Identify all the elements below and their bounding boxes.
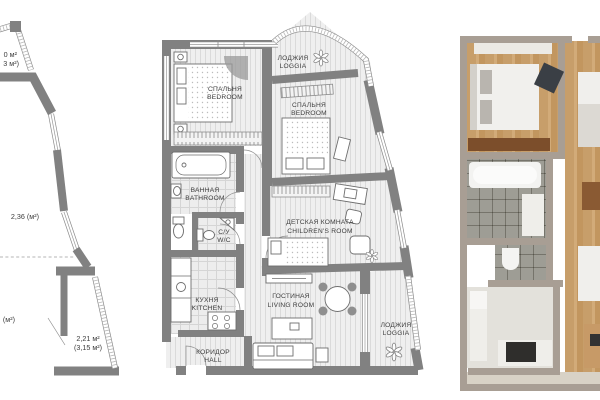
render-sofa [578,246,600,301]
render-pillow [480,100,492,124]
label-kitchen-en: KITCHEN [192,305,223,312]
label-hall-ru: КОРИДОР [196,349,230,356]
render-wall [468,368,560,375]
render-blanket [578,104,600,147]
wardrobe-icon [272,186,330,197]
stove-icon [208,312,236,330]
sink-icon [171,184,181,198]
label-bedroom2-ru: СПАЛЬНЯ [292,102,326,109]
wall [10,21,21,32]
render-stove [506,342,536,362]
render-pillow [480,70,492,94]
wardrobe-icon [174,132,262,145]
label-children-en: CHILDREN'S ROOM [287,228,352,235]
render-wall [558,36,565,159]
render-3d-plan [458,34,600,394]
render-desk [582,182,600,210]
label-children-ru: ДЕТСКАЯ КОМНАТА [286,219,354,226]
label-bedroom1-en: BEDROOM [207,94,243,101]
label-bedroom1-ru: СПАЛЬНЯ [208,86,242,93]
bed-icon [268,238,328,266]
label-loggia-bottom-ru: ЛОДЖИЯ [381,322,412,329]
wall [76,249,88,267]
detailed-plan: СПАЛЬНЯ BEDROOM ЛОДЖИЯ LOGGIA СПАЛЬНЯ BE… [162,12,419,375]
label-bathroom-en: BATHROOM [185,195,225,202]
wall [57,150,64,211]
render-table [584,324,600,368]
area-label-mid: 2,36 (м²) [11,212,39,221]
area-label-lower: (м²) [3,315,15,324]
render-wall [553,287,560,375]
label-loggia-top-ru: ЛОДЖИЯ [278,55,309,62]
render-bed-headboard [470,64,477,130]
render-wall [460,152,564,159]
render-wardrobe [474,43,552,54]
toilet-icon [173,217,184,238]
loggia-area-label-2: (3,15 м²) [74,343,102,352]
render-wall [460,384,600,391]
side-table-icon [316,348,328,362]
label-living-ru: ГОСТИНАЯ [272,293,310,300]
render-wall [460,36,572,43]
label-wc-en: W/C [217,237,231,244]
tv-stand-icon [266,274,312,283]
render-fridge [470,291,487,309]
label-loggia-top-en: LOGGIA [280,63,307,70]
render-wall [588,36,600,43]
label-kitchen-ru: КУХНЯ [195,297,218,304]
bed-icon [282,118,330,174]
loggia-area-label-1: 2,21 м² [76,334,100,343]
bed-icon [174,52,232,134]
render-wall [460,238,552,245]
label-living-en: LIVING ROOM [268,302,315,309]
label-bathroom-ru: ВАННАЯ [191,187,220,194]
bathtub-icon [172,152,230,178]
render-dresser [468,138,550,151]
label-loggia-bottom-en: LOGGIA [383,330,410,337]
render-wall [460,36,467,388]
armchair-icon [350,236,370,254]
area-label-top-1: 0 м² [4,50,18,59]
render-wall [546,159,553,287]
render-vanity [522,194,544,236]
label-wc-ru: С/У [218,229,230,236]
kitchen-counter-icon [171,258,191,322]
render-toilet [502,248,519,270]
label-hall-en: HALL [204,357,222,364]
label-bedroom2-en: BEDROOM [291,110,327,117]
render-bathtub-basin [473,166,537,184]
coffee-table-icon [272,318,312,339]
area-label-top-2: 3 м²) [3,59,19,68]
floorplan-image: 0 м² 3 м²) 2,36 (м²) (м²) 2,21 м² (3,15 … [0,0,600,400]
left-outline-plan: 0 м² 3 м²) 2,36 (м²) (м²) 2,21 м² (3,15 … [0,21,119,371]
wall [0,77,52,113]
render-table-item [590,334,600,346]
